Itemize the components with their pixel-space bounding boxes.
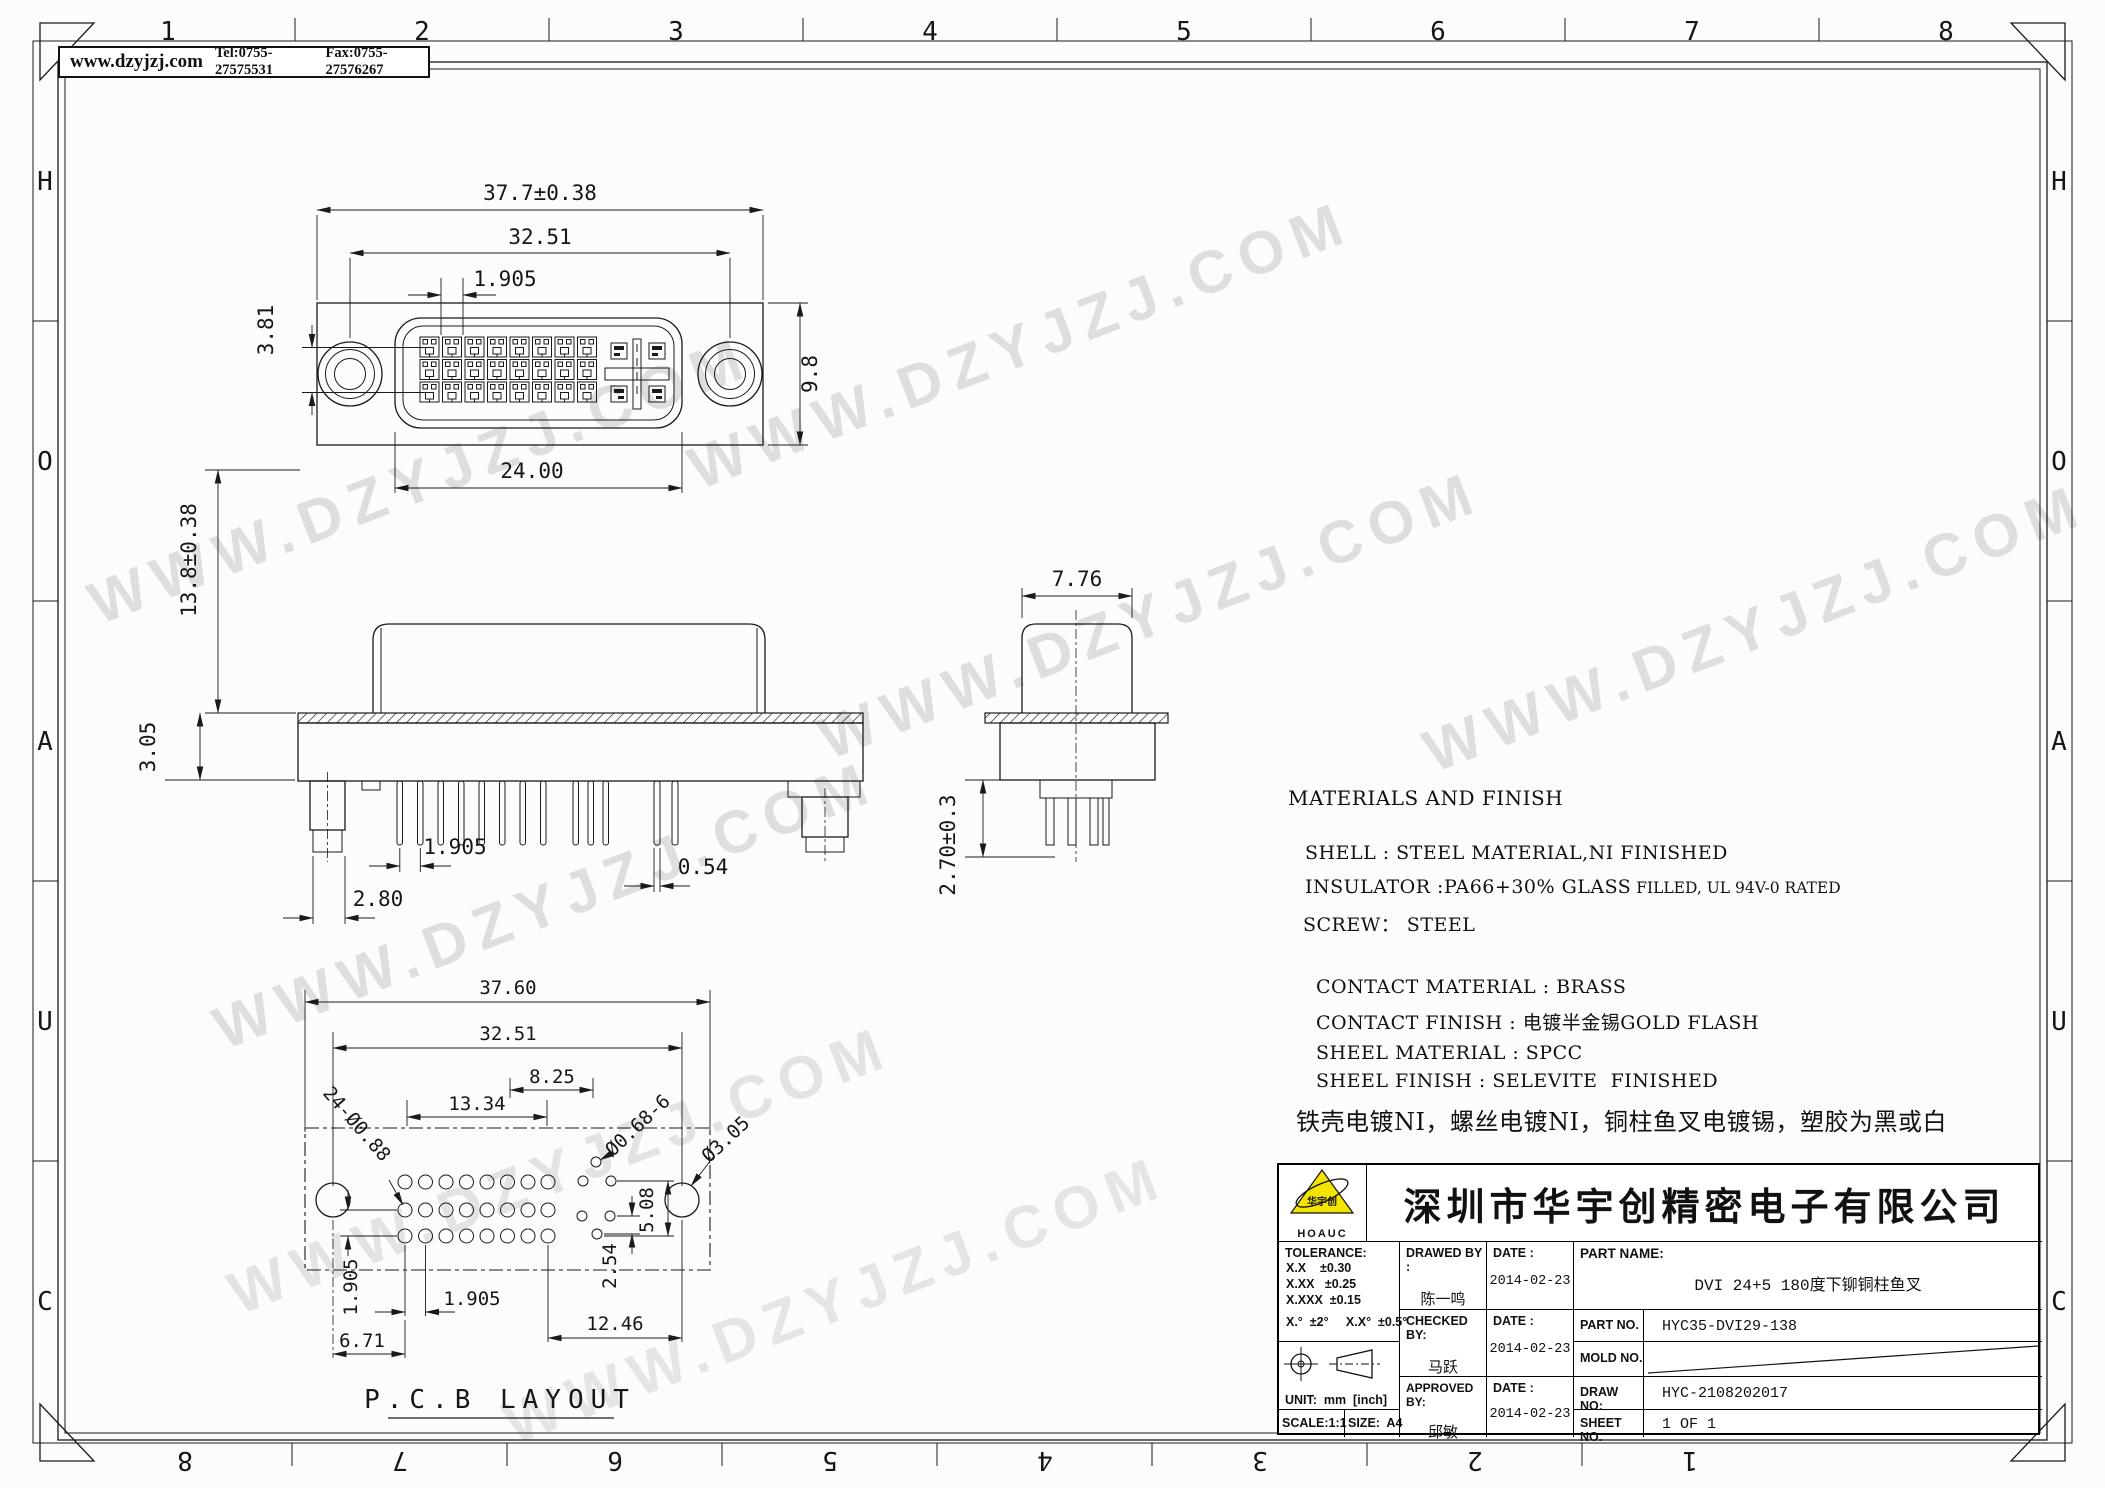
drawed-by-name: 陈一鸣 [1400,1288,1486,1309]
materials-contact-material: CONTACT MATERIAL : BRASS [1316,976,1626,998]
date-label: DATE : [1487,1242,1573,1260]
date-cell: DATE : 2014-02-23 [1487,1242,1574,1310]
materials-insulator-main: INSULATOR :PA66+30% GLASS [1305,876,1631,898]
dim-pin-pitch: 1.905 [473,267,536,291]
title-block: 华宇创 HOAUC 深圳市华宇创精密电子有限公司 TOLERANCE: X.X … [1277,1163,2040,1435]
dim-pin-pitch: 1.905 [423,835,486,859]
dim-c5-height: 5.08 [636,1187,658,1233]
tolerance-label: TOLERANCE: [1279,1242,1399,1260]
checked-by-cell: CHECKED BY: 马跃 [1400,1310,1487,1377]
size-label: SIZE: A4 [1345,1410,1399,1430]
pcb-layout-title: P.C.B LAYOUT [364,1385,636,1415]
front-view: 37.7±0.38 32.51 1.905 3.81 9.8 24.00 [254,181,822,493]
materials-sheel-material: SHEEL MATERIAL : SPCC [1316,1042,1583,1064]
draw-no-value: HYC-2108202017 [1644,1385,2042,1402]
pcb-layout: 37.60 32.51 13.34 8.25 24-Ø0.88 Ø0.68-6 … [305,977,754,1418]
dim-boss-width: 2.80 [353,887,404,911]
part-name-cell: PART NAME: DVI 24+5 180度下铆铜柱鱼叉 [1574,1242,2042,1310]
zone-letter: U [2051,1007,2067,1037]
pin-grid [420,337,597,402]
materials-insulator: INSULATOR :PA66+30% GLASS FILLED, UL 94V… [1305,876,1841,898]
dim-c5-pitch: 2.54 [599,1243,621,1289]
zone-letter: H [2051,167,2067,197]
approved-by-cell: APPROVED BY: 邱敏 [1400,1377,1487,1437]
checked-by-name: 马跃 [1400,1356,1486,1377]
label-mount-hole: Ø3.05 [697,1112,754,1167]
zone-number: 7 [1684,17,1700,47]
drawing-sheet: WWW.DZYJZJ.COM WWW.DZYJZJ.COM WWW.DZYJZJ… [0,0,2105,1488]
projection-cell: UNIT: mm [inch] [1279,1342,1400,1410]
zone-number: 5 [1176,17,1192,47]
label-c5-holes: Ø0.68-6 [601,1090,675,1161]
dim-row-span: 3.81 [254,305,278,356]
part-no-value: HYC35-DVI29-138 [1644,1318,2042,1335]
sheet-no-value-cell: 1 OF 1 [1644,1410,2042,1437]
dim-flange-height: 3.05 [136,722,160,773]
materials-contact-finish: CONTACT FINISH : 电镀半金锡GOLD FLASH [1316,1008,1759,1035]
part-no-label: PART NO. [1574,1310,1643,1332]
zone-number: 4 [1037,1445,1053,1475]
mold-no-label-cell: MOLD NO. [1574,1342,1644,1377]
draw-no-value-cell: HYC-2108202017 [1644,1377,2042,1410]
zone-letter: U [37,1007,53,1037]
logo-text: HOAUC [1279,1228,1366,1240]
logo-cell: 华宇创 HOAUC [1279,1165,1367,1242]
zone-number: 3 [668,17,684,47]
dim-mount-span: 32.51 [479,1023,536,1045]
dim-overall-width: 37.7±0.38 [483,181,597,205]
dim-c5-width: 13.34 [448,1093,505,1115]
dim-overall: 37.60 [479,977,536,999]
zone-letter: O [2051,447,2067,477]
part-name-label: PART NAME: [1574,1242,2042,1261]
part-name-value: DVI 24+5 180度下铆铜柱鱼叉 [1574,1271,2042,1295]
checked-by-label: CHECKED BY: [1400,1310,1486,1342]
fax-text: Fax:0755-27576267 [326,45,428,79]
part-no-value-cell: HYC35-DVI29-138 [1644,1310,2042,1342]
sheet-no-label: SHEET NO. [1574,1410,1643,1444]
mold-no-value-cell [1644,1342,2042,1377]
date-label: DATE : [1487,1310,1573,1328]
date-value: 2014-02-23 [1487,1342,1573,1357]
tolerance-row: X.XX ±0.25 [1279,1276,1399,1292]
unit-label: UNIT: mm [inch] [1279,1391,1399,1407]
zone-number: 2 [414,17,430,47]
dim-pin-length: 2.70±0.3 [936,794,960,895]
date-value: 2014-02-23 [1487,1407,1573,1422]
part-no-label-cell: PART NO. [1574,1310,1644,1342]
company-logo-icon: 华宇创 [1279,1165,1365,1223]
materials-title: MATERIALS AND FINISH [1288,786,1563,810]
zone-number: 6 [1430,17,1446,47]
corner-arrow-icon [2011,23,2065,80]
pcb-c5-holes [577,1157,616,1239]
zone-letter: O [37,447,53,477]
zone-number: 1 [1682,1445,1698,1475]
zone-number: 3 [1252,1445,1268,1475]
end-view: 7.76 2.70±0.3 [936,567,1168,896]
analog-cross [605,339,669,409]
dim-right-span: 12.46 [586,1313,643,1335]
blank-diagonal-line [1644,1342,2042,1377]
zone-number: 1 [160,17,176,47]
dim-row-pitch: 1.905 [340,1258,362,1315]
dim-left-offset: 6.71 [339,1330,385,1352]
scale-label: SCALE:1:1 [1279,1410,1344,1430]
draw-no-label: DRAW NO: [1574,1377,1643,1413]
drawed-by-cell: DRAWED BY : 陈一鸣 [1400,1242,1487,1310]
date-cell: DATE : 2014-02-23 [1487,1377,1574,1437]
materials-sheel-finish: SHEEL FINISH : SELEVITE FINISHED [1316,1070,1718,1092]
zone-letter: A [2051,727,2067,757]
tolerance-cell: TOLERANCE: X.X ±0.30 X.XX ±0.25 X.XXX ±0… [1279,1242,1400,1342]
tolerance-row: X.XXX ±0.15 [1279,1292,1399,1308]
date-cell: DATE : 2014-02-23 [1487,1310,1574,1377]
side-view: 13.8±0.38 3.05 2.80 1.905 0.54 [136,470,863,924]
sheet-no-value: 1 OF 1 [1644,1416,2042,1433]
dim-shroud-width: 24.00 [500,459,563,483]
zone-number: 8 [177,1445,193,1475]
mold-no-label: MOLD NO. [1574,1342,1643,1365]
dim-shell-height: 9.8 [798,355,822,393]
header-contact-box: www.dzyjzj.com Tel:0755-27575531 Fax:075… [58,46,430,78]
zone-number: 4 [922,17,938,47]
approved-by-name: 邱敏 [1400,1421,1486,1442]
zone-letter: H [37,167,53,197]
dim-mount-span: 32.51 [508,225,571,249]
zone-number: 7 [392,1445,408,1475]
logo-cn-text: 华宇创 [1307,1195,1337,1208]
materials-note-cn: 铁壳电镀NI，螺丝电镀NI，铜柱鱼叉电镀锡，塑胶为黑或白 [1296,1102,1947,1137]
pcb-signal-holes [398,1175,555,1243]
tel-text: Tel:0755-27575531 [215,45,314,79]
materials-shell: SHELL : STEEL MATERIAL,NI FINISHED [1305,842,1728,864]
dim-pin-width: 0.54 [678,855,729,879]
pcb-dims: 37.60 32.51 13.34 8.25 24-Ø0.88 Ø0.68-6 … [305,977,754,1358]
dim-c5-inner: 8.25 [529,1066,575,1088]
size-cell: SIZE: A4 [1345,1410,1400,1437]
drawed-by-label: DRAWED BY : [1400,1242,1486,1274]
tolerance-row: X.X ±0.30 [1279,1260,1399,1276]
materials-insulator-tail: FILLED, UL 94V-0 RATED [1631,879,1840,897]
draw-no-label-cell: DRAW NO: [1574,1377,1644,1410]
zone-letter: A [37,727,53,757]
zone-number: 5 [822,1445,838,1475]
zone-letter: C [37,1287,53,1317]
projection-symbol-icon [1279,1342,1398,1386]
label-signal-holes: 24-Ø0.88 [318,1082,395,1166]
zone-number: 2 [1467,1445,1483,1475]
website-text: www.dzyjzj.com [70,51,203,73]
scale-cell: SCALE:1:1 [1279,1410,1345,1437]
company-name: 深圳市华宇创精密电子有限公司 [1367,1165,2042,1242]
zone-number: 6 [607,1445,623,1475]
sheet-no-label-cell: SHEET NO. [1574,1410,1644,1437]
dim-col-pitch: 1.905 [443,1288,500,1310]
dim-width: 7.76 [1052,567,1103,591]
dim-height: 13.8±0.38 [177,503,201,617]
materials-screw: SCREW： STEEL [1303,910,1475,937]
side-view-dims: 13.8±0.38 3.05 2.80 1.905 0.54 [136,470,728,924]
date-label: DATE : [1487,1377,1573,1395]
zone-number: 8 [1938,17,1954,47]
approved-by-label: APPROVED BY: [1400,1377,1486,1409]
date-value: 2014-02-23 [1487,1274,1573,1289]
zone-letter: C [2051,1287,2067,1317]
end-view-dims: 7.76 2.70±0.3 [936,567,1132,896]
tolerance-angle-row: X.° ±2° X.X° ±0.5° [1279,1314,1399,1330]
